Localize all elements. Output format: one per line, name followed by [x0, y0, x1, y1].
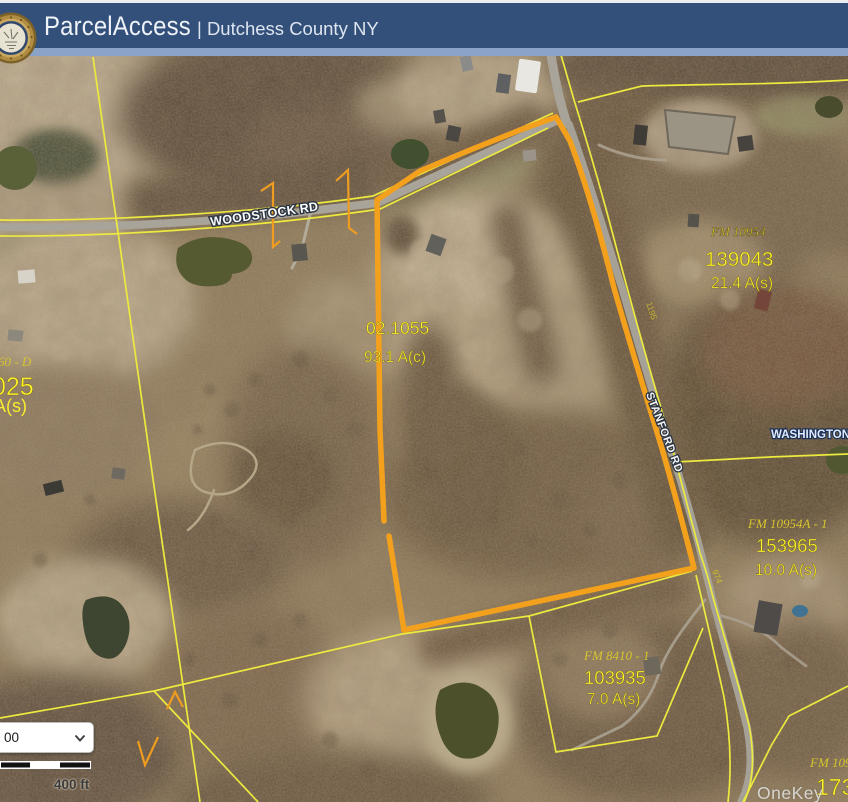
svg-text:FM 10954A - 1: FM 10954A - 1: [747, 516, 828, 531]
svg-text:139043: 139043: [705, 248, 773, 271]
svg-text:60 - D: 60 - D: [0, 354, 32, 369]
svg-text:7.0 A(s): 7.0 A(s): [587, 691, 640, 708]
svg-text:FM 10954: FM 10954: [710, 224, 766, 239]
svg-text:FM 109: FM 109: [809, 755, 848, 770]
svg-text:103935: 103935: [584, 667, 646, 688]
svg-text:A(s): A(s): [0, 396, 27, 416]
svg-text:10.0 A(s): 10.0 A(s): [755, 562, 817, 579]
svg-text:153965: 153965: [756, 535, 818, 556]
svg-text:93.1 A(c): 93.1 A(c): [364, 349, 426, 366]
svg-text:02.1055: 02.1055: [366, 318, 429, 338]
svg-text:WASHINGTON: WASHINGTON: [771, 429, 848, 441]
svg-text:21.4 A(s): 21.4 A(s): [711, 275, 773, 292]
svg-text:FM 8410 - 1: FM 8410 - 1: [583, 648, 649, 663]
